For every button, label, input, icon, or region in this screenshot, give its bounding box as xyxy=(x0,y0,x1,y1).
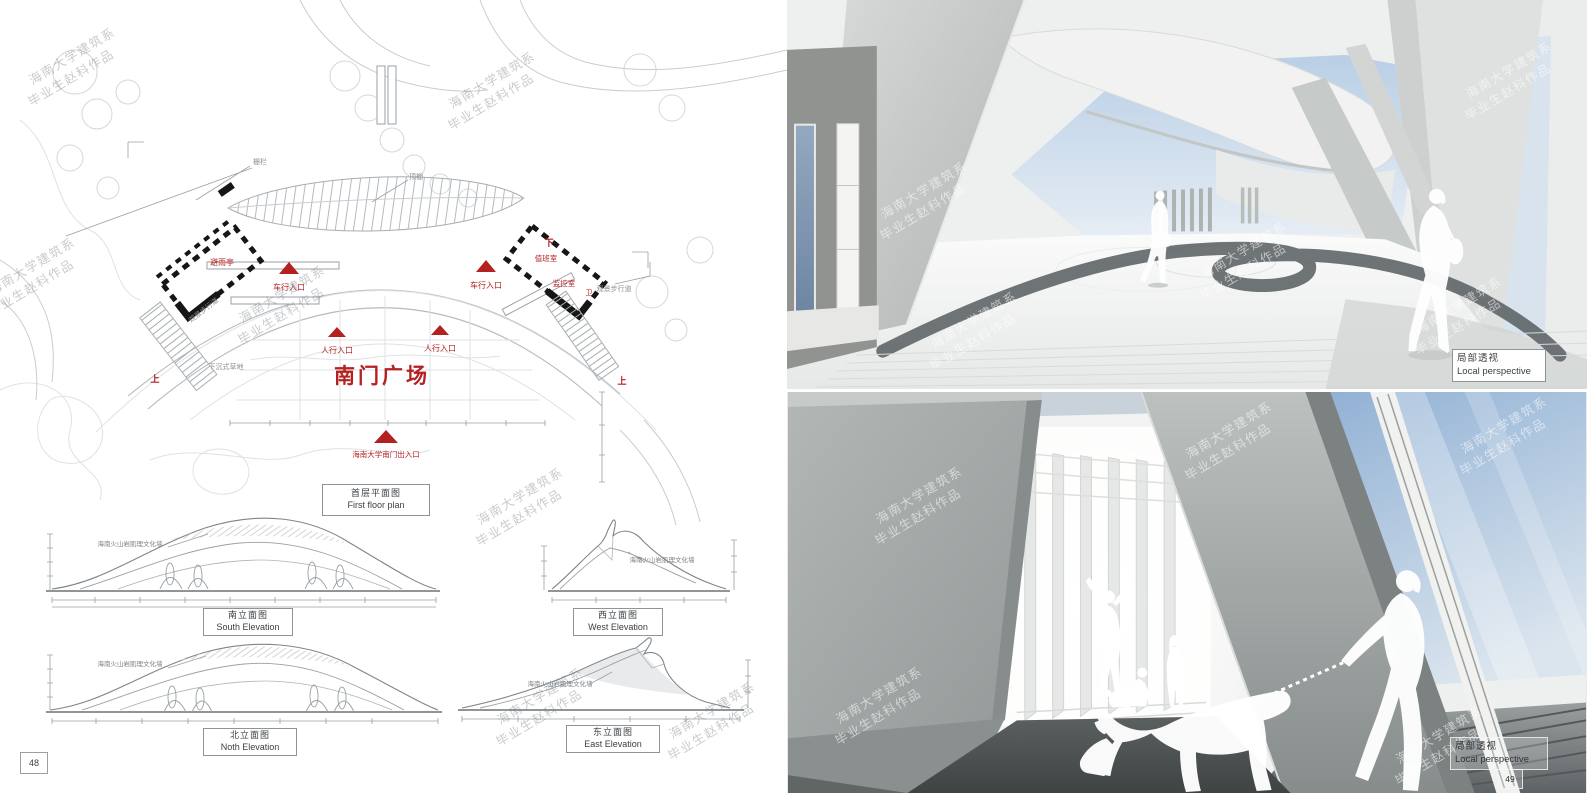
page-number-left: 48 xyxy=(20,752,48,774)
vehicle-entrance-marker-icon xyxy=(476,260,496,272)
plan-title-box: 首层平面图 First floor plan xyxy=(322,484,430,516)
canopy-label: 顶棚 xyxy=(409,172,423,181)
vehicle-entrance-label: 车行入口 xyxy=(273,282,305,292)
elevation-title-en: East Elevation xyxy=(584,739,642,751)
render-caption-cn: 局部透视 xyxy=(1455,741,1497,753)
duty-room-label: 值班室 xyxy=(535,253,558,263)
south-gate-marker-icon xyxy=(374,430,398,443)
west-elevation-drawing: 海南火山岩肌理文化墙 xyxy=(541,520,737,603)
stairs-right xyxy=(546,291,618,380)
elevation-trees xyxy=(166,562,344,587)
vehicle-entrance-label: 车行入口 xyxy=(470,280,502,290)
west-elevation-dimensions xyxy=(541,540,737,603)
render-bottom-local-perspective xyxy=(787,392,1587,793)
material-note: 海南火山岩肌理文化墙 xyxy=(98,659,164,668)
east-elevation-title-box: 东立面图 East Elevation xyxy=(566,725,660,753)
north-elevation-title-box: 北立面图 Noth Elevation xyxy=(203,728,297,756)
plan-title-en: First floor plan xyxy=(347,500,404,512)
plan-and-elevations-svg: 车行入口 车行入口 人行入口 人行入口 南门广场 海南大学南门出入口 避雨亭 值… xyxy=(0,0,787,793)
plan-arc-inner xyxy=(148,308,602,409)
render-caption-en: Local perspective xyxy=(1455,754,1529,766)
up-label: 上 xyxy=(617,375,626,386)
east-elevation-drawing: 海南火山岩肌理文化墙 xyxy=(458,638,751,722)
render-caption-en: Local perspective xyxy=(1457,366,1531,378)
material-note: 海南火山岩肌理文化墙 xyxy=(98,539,164,548)
site-plan-drawing xyxy=(0,0,787,525)
render-top-caption-box: 局部透视 Local perspective xyxy=(1452,349,1546,382)
up-label: 上 xyxy=(150,373,159,384)
plaza-grid xyxy=(236,296,540,420)
elevation-title-cn: 南立面图 xyxy=(228,610,268,622)
render-bottom-caption-box: 局部透视 Local perspective xyxy=(1450,737,1548,770)
glass-window xyxy=(795,125,815,319)
plaza-title: 南门广场 xyxy=(334,364,430,388)
page-number-right: 49 xyxy=(1497,769,1523,789)
monitor-room-label: 监控室 xyxy=(553,278,576,288)
rain-shelter-label: 避雨亭 xyxy=(210,257,234,267)
south-gate-entrance-label: 海南大学南门出入口 xyxy=(352,449,420,459)
elevation-title-cn: 东立面图 xyxy=(593,727,633,739)
render-caption-cn: 局部透视 xyxy=(1457,353,1499,365)
plan-black-marker xyxy=(218,182,235,197)
pedestrian-entrance-label: 人行入口 xyxy=(321,345,353,355)
sunken-lawn-label: 下沉式草地 xyxy=(209,362,244,371)
material-note: 海南火山岩肌理文化墙 xyxy=(528,679,594,688)
page-number-text: 49 xyxy=(1505,774,1514,784)
fence-label: 栅栏 xyxy=(253,157,267,166)
white-window xyxy=(837,124,859,312)
north-elevation-drawing: 海南火山岩肌理文化墙 xyxy=(46,644,442,724)
material-note: 海南火山岩肌理文化墙 xyxy=(630,555,696,564)
pedestrian-entrance-marker-icon xyxy=(431,325,449,335)
elevation-title-en: Noth Elevation xyxy=(221,742,280,754)
portfolio-spread: 车行入口 车行入口 人行入口 人行入口 南门广场 海南大学南门出入口 避雨亭 值… xyxy=(0,0,1587,793)
wc-label: 卫 xyxy=(586,289,593,297)
render-top-svg xyxy=(787,0,1587,389)
elevation-title-cn: 北立面图 xyxy=(230,730,270,742)
scenic-walkway-label: 观景步行道 xyxy=(597,284,632,293)
south-elevation-title-box: 南立面图 South Elevation xyxy=(203,608,293,636)
south-elevation-drawing: 海南火山岩肌理文化墙 xyxy=(46,518,440,607)
down-label: 下 xyxy=(544,238,553,248)
plan-title-cn: 首层平面图 xyxy=(351,488,401,500)
pedestrian-entrance-label: 人行入口 xyxy=(424,343,456,353)
west-elevation-title-box: 西立面图 West Elevation xyxy=(573,608,663,636)
left-page-drawings: 车行入口 车行入口 人行入口 人行入口 南门广场 海南大学南门出入口 避雨亭 值… xyxy=(0,0,787,793)
elevation-title-en: West Elevation xyxy=(588,622,648,634)
plan-canopy-lens xyxy=(228,177,524,231)
render-bottom-svg xyxy=(787,392,1587,793)
elevation-title-cn: 西立面图 xyxy=(598,610,638,622)
scenic-walkway-label: 观景步行道 xyxy=(187,296,220,325)
pedestrian-entrance-marker-icon xyxy=(328,327,346,337)
page-number-text: 48 xyxy=(29,758,39,768)
elevation-title-en: South Elevation xyxy=(216,622,279,634)
render-top-local-perspective xyxy=(787,0,1587,389)
